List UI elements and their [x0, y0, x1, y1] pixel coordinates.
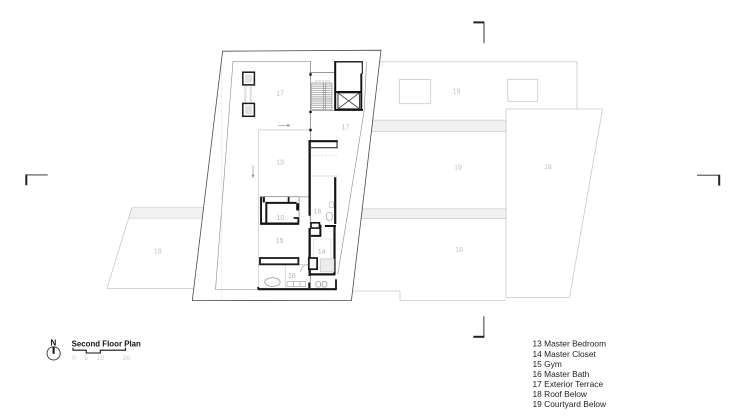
svg-text:14 Master Closet: 14 Master Closet: [533, 349, 597, 359]
svg-text:5: 5: [84, 355, 88, 362]
svg-text:17 Exterior Terrace: 17 Exterior Terrace: [533, 379, 604, 389]
svg-text:14: 14: [318, 249, 326, 256]
svg-text:18: 18: [544, 164, 552, 171]
svg-text:N: N: [51, 338, 57, 347]
svg-text:18: 18: [455, 247, 463, 254]
svg-text:17: 17: [276, 91, 284, 98]
svg-text:13: 13: [276, 159, 284, 166]
svg-text:15 Gym: 15 Gym: [533, 359, 562, 369]
svg-text:10: 10: [97, 355, 105, 362]
svg-text:10: 10: [277, 215, 285, 222]
svg-text:15: 15: [276, 238, 284, 245]
svg-text:17: 17: [342, 125, 350, 132]
svg-text:19: 19: [454, 165, 462, 172]
svg-text:16 Master Bath: 16 Master Bath: [533, 369, 590, 379]
svg-text:16: 16: [314, 208, 322, 215]
svg-text:13 Master Bedroom: 13 Master Bedroom: [533, 339, 607, 349]
svg-text:18: 18: [453, 89, 461, 96]
svg-text:0: 0: [72, 355, 76, 362]
svg-text:19 Courtyard Below: 19 Courtyard Below: [533, 399, 608, 409]
svg-text:16: 16: [288, 273, 296, 280]
svg-text:18 Roof Below: 18 Roof Below: [533, 389, 588, 399]
svg-text:18: 18: [154, 248, 162, 255]
svg-text:20: 20: [123, 355, 131, 362]
svg-text:Second Floor Plan: Second Floor Plan: [72, 339, 141, 348]
